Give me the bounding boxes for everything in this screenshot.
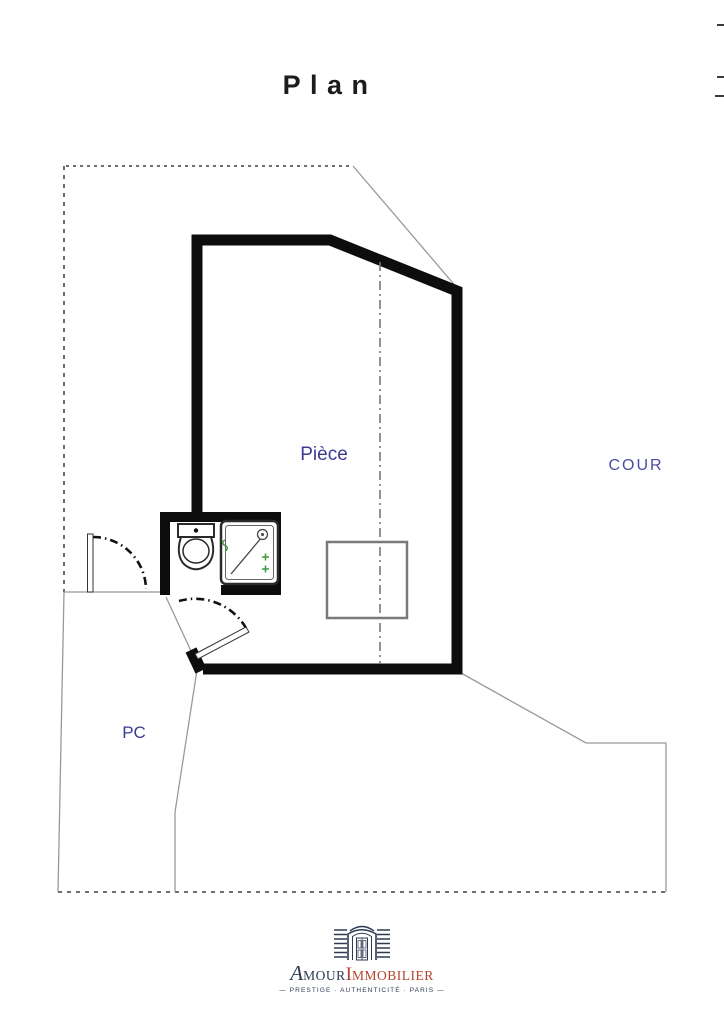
site-outline-lines: [58, 166, 666, 892]
brand-text: MOUR: [303, 968, 346, 983]
table-outline: [327, 542, 407, 618]
property-boundary: [58, 166, 666, 892]
shower-icon: [221, 521, 278, 584]
floor-plan-drawing: [0, 0, 724, 1024]
agency-tagline: — PRESTIGE · AUTHENTICITÉ · PARIS —: [0, 987, 724, 994]
toilet-icon: [178, 524, 214, 569]
floor-plan-page: Plan: [0, 0, 724, 1024]
door-swing-icon: [179, 599, 249, 659]
agency-logo: AMOURIMMOBILIER — PRESTIGE · AUTHENTICIT…: [0, 920, 724, 994]
brand-initial: A: [290, 961, 303, 985]
agency-name: AMOURIMMOBILIER: [0, 963, 724, 984]
common-area-label: PC: [114, 723, 154, 743]
room-label: Pièce: [288, 444, 360, 466]
doorway-logo-icon: [332, 920, 392, 962]
brand-text: MMOBILIER: [352, 968, 434, 983]
courtyard-label: COUR: [596, 457, 676, 475]
door-swing-icon: [88, 534, 147, 592]
